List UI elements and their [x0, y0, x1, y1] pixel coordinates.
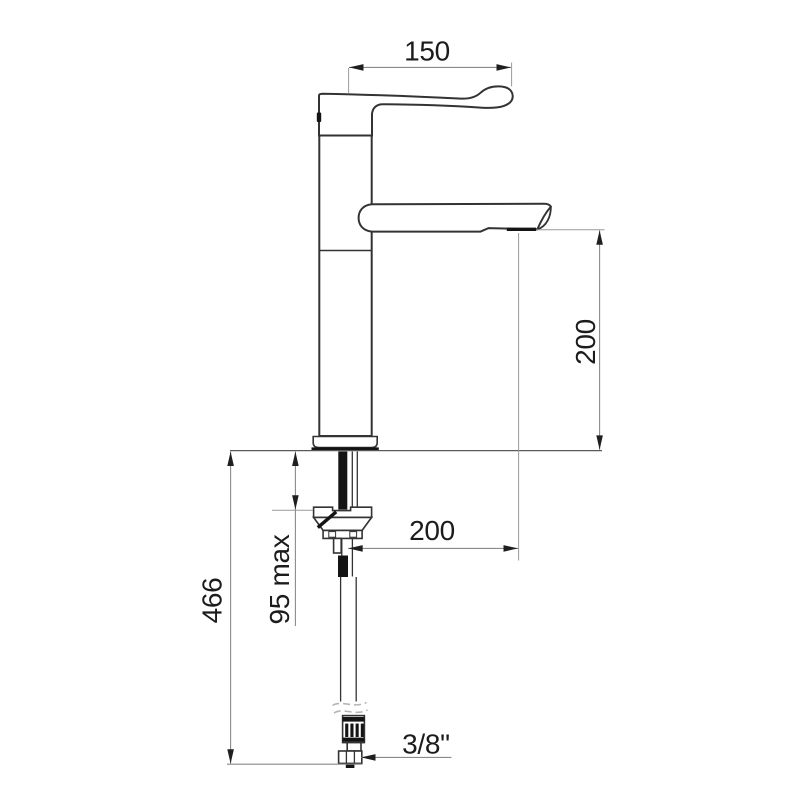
arrowhead-up — [227, 452, 234, 466]
temperature-indicator — [317, 113, 321, 123]
dim-label-spout-reach: 200 — [409, 515, 455, 546]
supply-hose — [333, 577, 368, 713]
dim-label-hose-connection: 3/8" — [402, 729, 450, 760]
dim-label-deck-thickness: 95 max — [264, 534, 295, 624]
hose-crimp — [338, 556, 348, 578]
threaded-rod — [338, 452, 347, 510]
dim-label-spout-height: 200 — [570, 319, 601, 365]
arrowhead-up — [596, 230, 603, 244]
callout-hose-connection: 3/8" — [361, 729, 452, 761]
hose-break-mark — [333, 703, 367, 706]
dim-label-below-deck-height: 466 — [197, 578, 228, 624]
arrowhead-left — [349, 64, 364, 71]
dimension-handle-length: 150 — [349, 36, 512, 94]
sleeve-rib — [345, 724, 348, 737]
connector-neck — [347, 743, 361, 751]
faucet-diagram: 150 200 200 95 max — [0, 0, 800, 800]
dimension-deck-thickness: 95 max — [264, 452, 313, 626]
dimension-spout-reach: 200 — [348, 233, 518, 561]
base-flange — [313, 437, 377, 448]
dimension-spout-height: 200 — [537, 230, 605, 450]
spout — [359, 204, 551, 232]
arrowhead-up — [292, 452, 299, 466]
dim-label-handle-length: 150 — [404, 36, 450, 67]
lever-handle — [319, 86, 513, 135]
hose-bracket — [334, 538, 342, 553]
arrowhead-down — [292, 495, 299, 509]
technical-drawing-canvas: 150 200 200 95 max — [0, 0, 800, 800]
arrowhead-right — [497, 64, 512, 71]
faucet — [312, 86, 551, 449]
sleeve-band — [343, 738, 365, 742]
connector-hex-nut — [339, 751, 362, 763]
arrowhead-down — [227, 749, 234, 763]
arrowhead-right — [504, 545, 519, 552]
arrowhead-down — [596, 435, 603, 449]
hose-connector — [227, 716, 364, 768]
dimension-below-deck-height: 466 — [197, 452, 234, 764]
arrowhead-left — [361, 754, 376, 761]
mounting-assembly — [314, 452, 372, 578]
sleeve-rib — [350, 724, 353, 737]
arrowhead-left — [348, 545, 363, 552]
nut-notch — [350, 532, 357, 538]
hose-break-mark — [334, 710, 368, 713]
nut-notch — [329, 532, 336, 538]
sleeve-band — [343, 717, 365, 722]
sleeve-rib — [356, 724, 359, 737]
faucet-body — [319, 136, 371, 437]
sleeve-rib — [361, 724, 364, 737]
